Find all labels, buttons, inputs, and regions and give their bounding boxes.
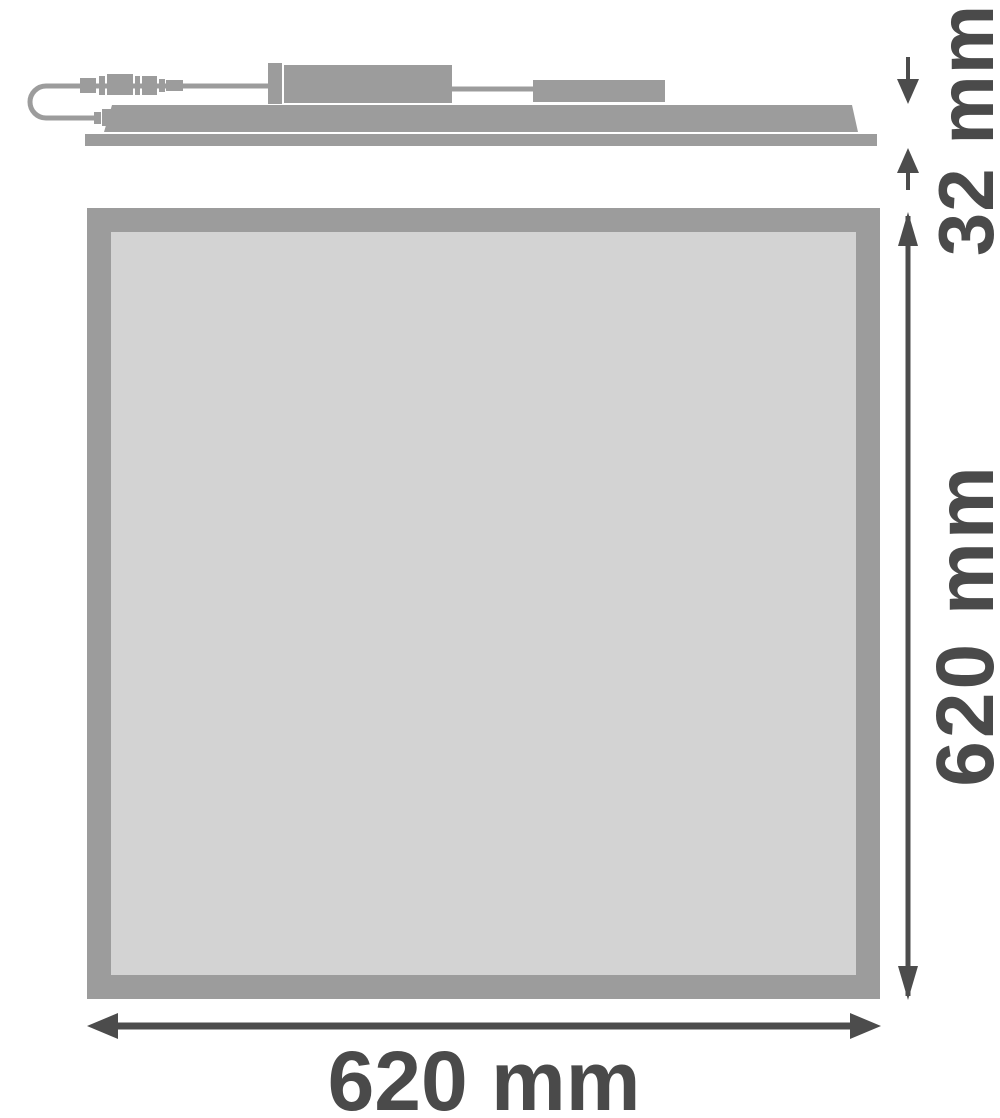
arrow-left-icon	[87, 1013, 118, 1039]
thickness-dimension-label: 32 mm	[927, 4, 1000, 256]
inlet-segment	[94, 112, 101, 124]
connector-segment	[142, 76, 157, 95]
connector-segment	[166, 80, 183, 91]
arrow-up-icon	[898, 212, 918, 246]
cable-plug-connector	[80, 74, 183, 95]
arrow-right-icon	[850, 1013, 881, 1039]
arrow-down-icon	[897, 79, 919, 104]
connector-segment	[159, 79, 165, 92]
panel-front-view	[87, 208, 880, 999]
driver-box-small	[533, 80, 665, 102]
height-dimension	[898, 212, 918, 1000]
panel-profile-body	[104, 105, 858, 132]
led-panel-dimension-diagram: 32 mm 620 mm 620 mm	[0, 0, 1000, 1118]
connector-segment	[80, 78, 96, 93]
panel-profile-baseplate	[85, 134, 877, 146]
driver-box-endcap	[268, 63, 282, 104]
connector-segment	[107, 74, 133, 95]
arrow-down-icon	[898, 966, 918, 1000]
connector-segment	[135, 76, 140, 95]
panel-light-face	[111, 232, 856, 975]
height-dimension-label: 620 mm	[925, 463, 1000, 786]
driver-box	[284, 65, 452, 103]
connector-segment	[99, 76, 105, 95]
arrow-up-icon	[897, 148, 919, 173]
width-dimension-label: 620 mm	[328, 1039, 641, 1118]
thickness-dimension	[897, 57, 919, 190]
panel-side-view	[30, 63, 877, 146]
